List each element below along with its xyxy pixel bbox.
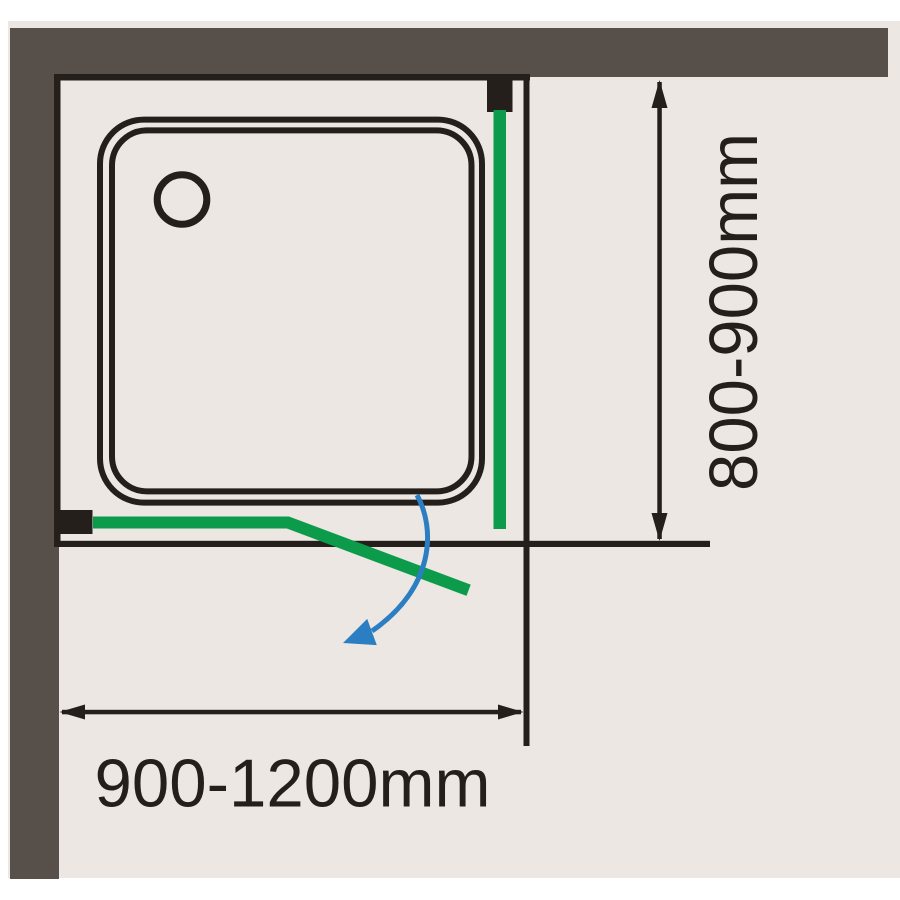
svg-text:900-1200mm: 900-1200mm bbox=[95, 747, 491, 822]
svg-text:800-900mm: 800-900mm bbox=[695, 133, 772, 491]
